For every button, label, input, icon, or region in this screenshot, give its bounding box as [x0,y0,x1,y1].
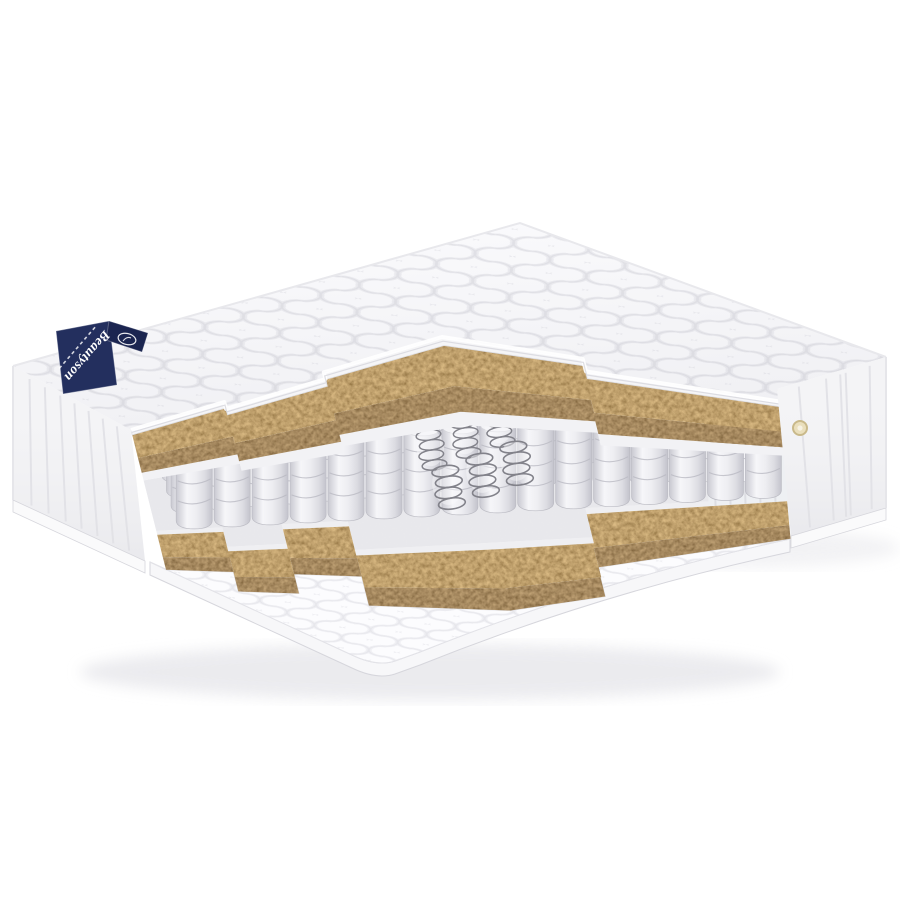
scene-root [13,223,900,700]
product-image-canvas: Spring mattress with stepped cutaway sho… [0,0,900,900]
ventilation-eyelet-hole [797,425,802,430]
mattress-product-photo: Spring mattress with stepped cutaway sho… [0,0,900,900]
right-side-panel-group [777,357,886,548]
